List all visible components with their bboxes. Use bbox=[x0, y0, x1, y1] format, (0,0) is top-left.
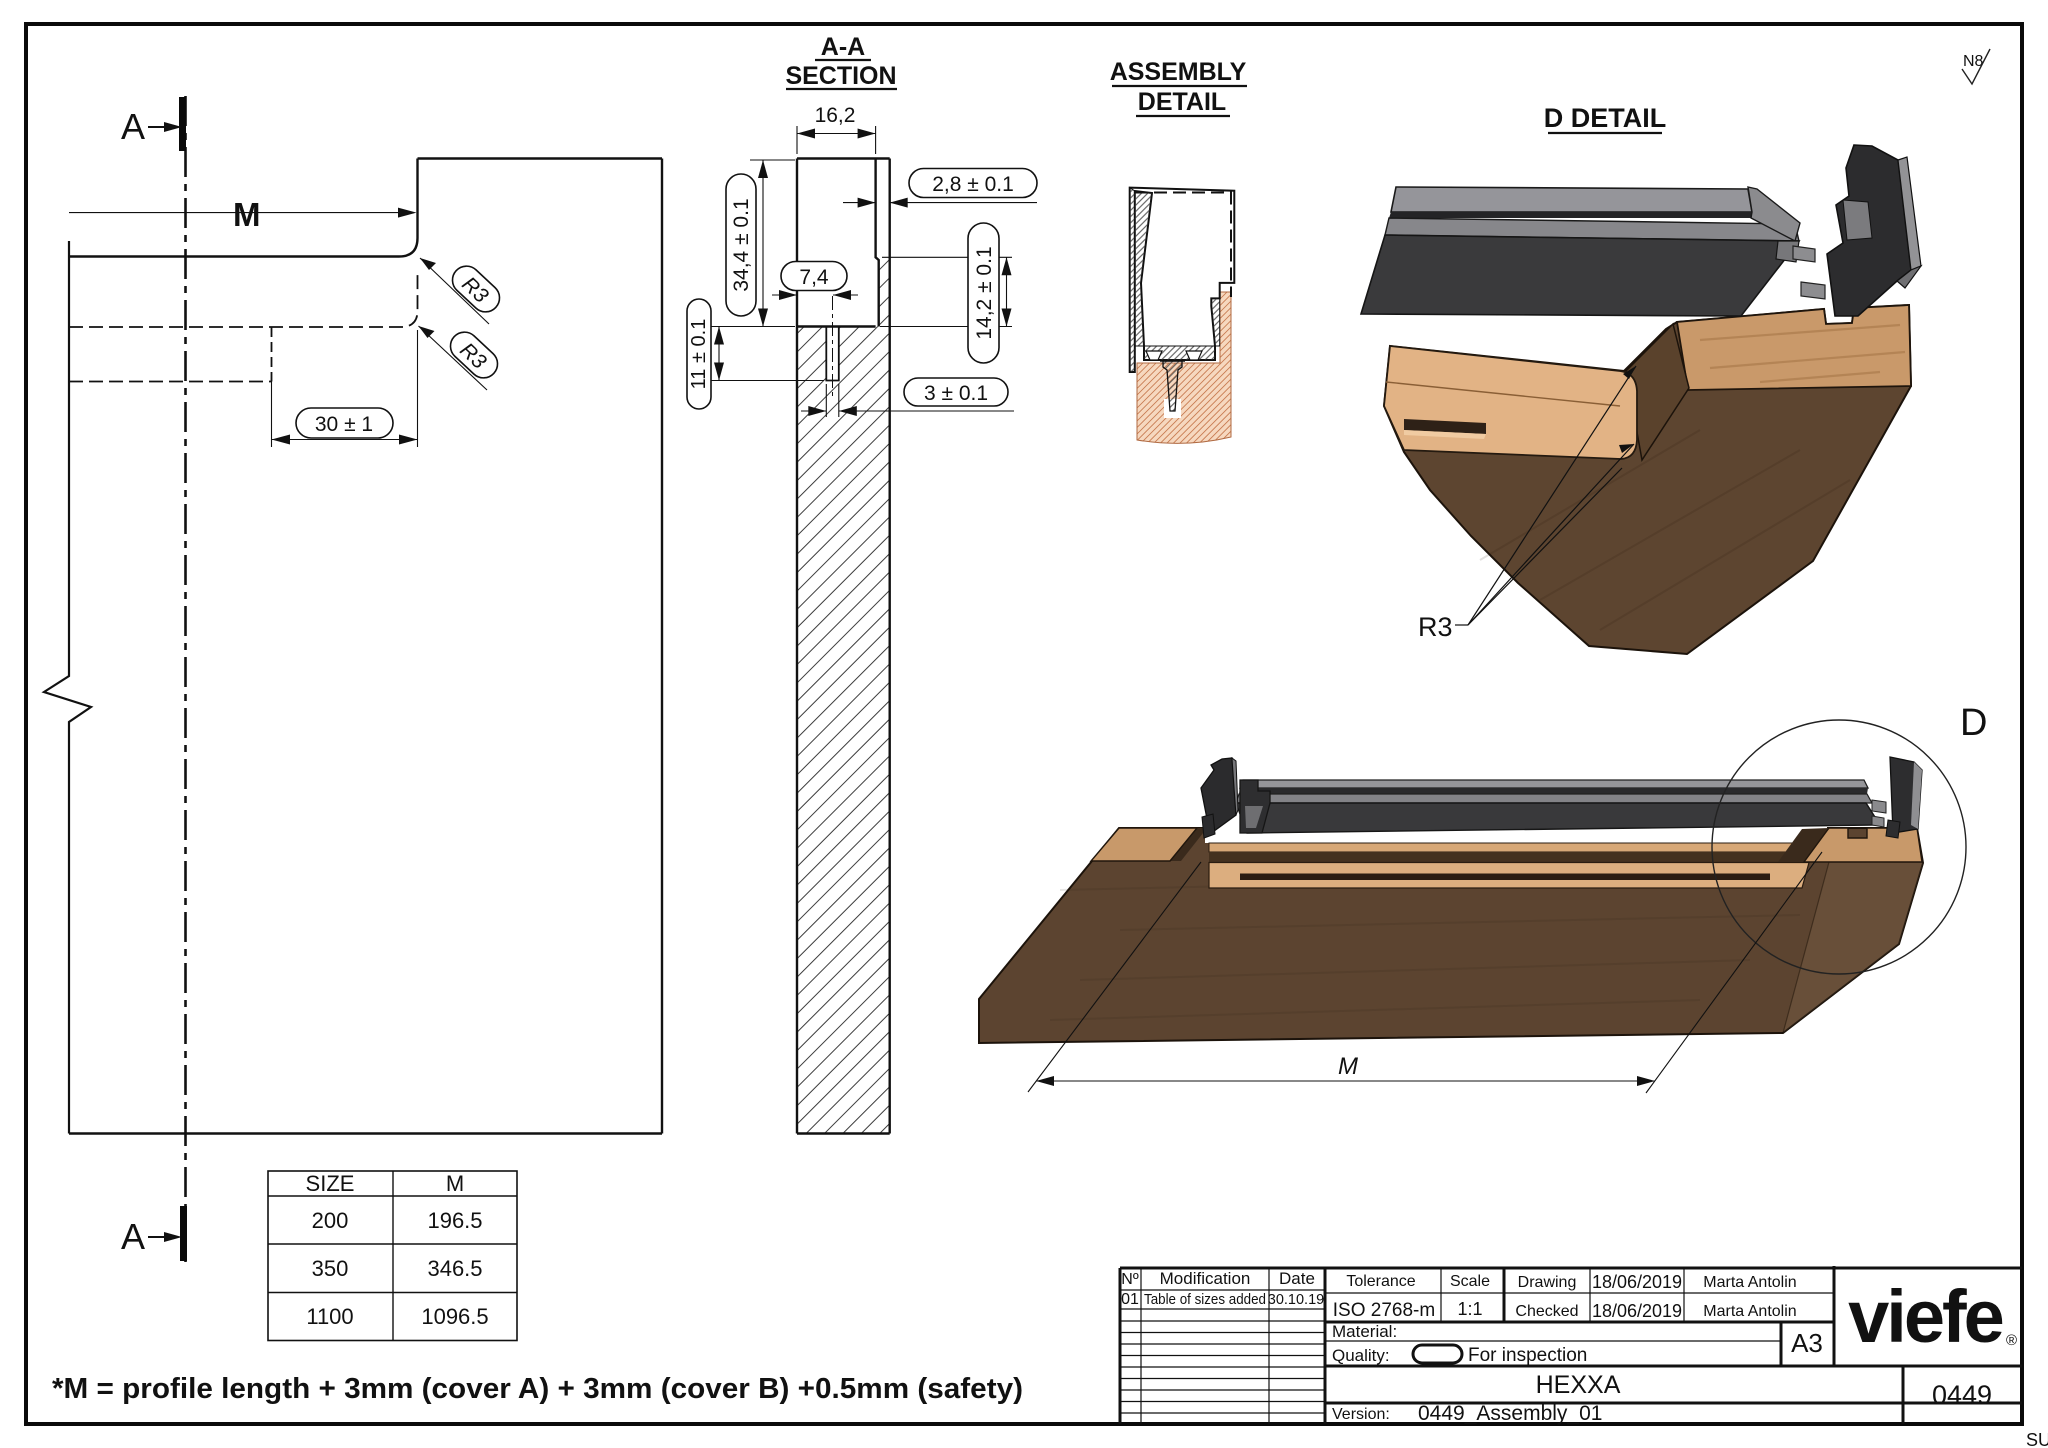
svg-text:A: A bbox=[121, 1216, 145, 1257]
svg-text:Material:: Material: bbox=[1332, 1322, 1397, 1341]
svg-text:Version:: Version: bbox=[1332, 1406, 1390, 1423]
svg-text:30.10.19: 30.10.19 bbox=[1268, 1292, 1324, 1308]
svg-text:ASSEMBLY: ASSEMBLY bbox=[1110, 58, 1247, 86]
svg-text:16,2: 16,2 bbox=[815, 104, 856, 127]
svg-text:18/06/2019: 18/06/2019 bbox=[1592, 1272, 1682, 1292]
svg-text:D DETAIL: D DETAIL bbox=[1544, 103, 1667, 133]
svg-text:3 ± 0.1: 3 ± 0.1 bbox=[924, 382, 988, 405]
svg-text:viefe: viefe bbox=[1848, 1275, 2003, 1358]
svg-text:1100: 1100 bbox=[306, 1304, 353, 1329]
svg-text:0449: 0449 bbox=[1932, 1380, 1992, 1410]
svg-text:Drawing: Drawing bbox=[1518, 1274, 1577, 1291]
svg-text:18/06/2019: 18/06/2019 bbox=[1592, 1301, 1682, 1321]
svg-text:SIZE: SIZE bbox=[306, 1171, 355, 1196]
svg-text:350: 350 bbox=[312, 1256, 349, 1281]
svg-text:34,4 ± 0.1: 34,4 ± 0.1 bbox=[730, 198, 753, 291]
svg-text:Marta Antolin: Marta Antolin bbox=[1703, 1303, 1796, 1320]
svg-text:7,4: 7,4 bbox=[799, 266, 829, 289]
svg-text:Marta Antolin: Marta Antolin bbox=[1703, 1274, 1796, 1291]
svg-text:30 ± 1: 30 ± 1 bbox=[315, 413, 373, 436]
svg-text:SECTION: SECTION bbox=[785, 62, 896, 90]
svg-text:346.5: 346.5 bbox=[427, 1256, 482, 1281]
svg-text:200: 200 bbox=[312, 1208, 349, 1233]
svg-text:0449_Assembly_01: 0449_Assembly_01 bbox=[1418, 1402, 1602, 1425]
svg-text:A: A bbox=[121, 106, 145, 147]
svg-text:Tolerance: Tolerance bbox=[1346, 1273, 1415, 1290]
svg-text:196.5: 196.5 bbox=[427, 1208, 482, 1233]
svg-text:M: M bbox=[446, 1171, 464, 1196]
svg-text:D: D bbox=[1960, 702, 1987, 744]
svg-text:Modification: Modification bbox=[1160, 1269, 1251, 1288]
svg-text:DETAIL: DETAIL bbox=[1138, 88, 1226, 116]
svg-text:Quality:: Quality: bbox=[1332, 1346, 1390, 1365]
svg-text:1096.5: 1096.5 bbox=[421, 1304, 488, 1329]
svg-text:SU: SU bbox=[2026, 1430, 2048, 1448]
svg-text:Checked: Checked bbox=[1515, 1303, 1578, 1320]
svg-text:R3: R3 bbox=[1418, 612, 1453, 642]
svg-text:Table of sizes added: Table of sizes added bbox=[1144, 1291, 1266, 1308]
svg-text:14,2 ± 0.1: 14,2 ± 0.1 bbox=[973, 246, 996, 339]
svg-text:Scale: Scale bbox=[1450, 1273, 1490, 1290]
svg-text:HEXXA: HEXXA bbox=[1536, 1371, 1621, 1399]
svg-text:A3: A3 bbox=[1791, 1328, 1823, 1358]
svg-text:Date: Date bbox=[1279, 1269, 1315, 1288]
svg-text:1:1: 1:1 bbox=[1457, 1299, 1482, 1319]
svg-text:ISO 2768-m: ISO 2768-m bbox=[1333, 1300, 1435, 1321]
svg-text:2,8 ± 0.1: 2,8 ± 0.1 bbox=[932, 173, 1014, 196]
svg-text:®: ® bbox=[2006, 1332, 2017, 1349]
svg-text:*M = profile length + 3mm (cov: *M = profile length + 3mm (cover A) + 3m… bbox=[52, 1373, 1023, 1405]
svg-text:11 ± 0.1: 11 ± 0.1 bbox=[688, 319, 710, 390]
svg-text:For inspection: For inspection bbox=[1468, 1345, 1587, 1366]
svg-text:01: 01 bbox=[1121, 1291, 1139, 1308]
svg-text:M: M bbox=[233, 196, 261, 233]
svg-text:Nº: Nº bbox=[1121, 1271, 1139, 1288]
svg-text:M: M bbox=[1338, 1053, 1358, 1080]
svg-text:A-A: A-A bbox=[821, 33, 865, 61]
